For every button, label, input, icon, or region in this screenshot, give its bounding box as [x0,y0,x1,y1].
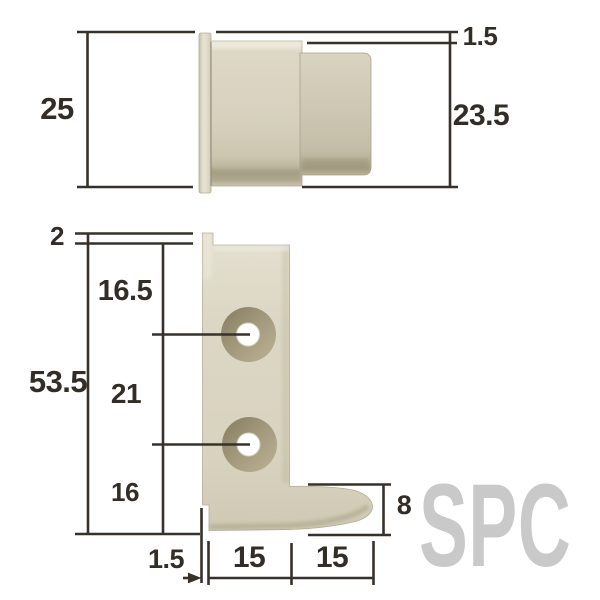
dim-label-lip-offset: 2 [50,223,64,249]
body-bottom-shadow [210,169,301,182]
diagram-canvas: 25 1.5 23.5 2 53.5 16.5 21 16 8 1.5 15 1… [0,0,600,600]
bottom-view-part [203,233,373,531]
dim-label-total-height-top: 25 [40,93,73,124]
dim-label-wall-thickness: 1.5 [148,546,184,573]
lip-highlight [204,234,212,279]
plate-right-shading [282,247,289,483]
part-protrusion-side [300,53,371,175]
part-body-side [209,41,302,186]
part-flange-side [199,33,211,193]
dim-label-hole-spacing: 21 [111,380,141,408]
dim-label-foot-height: 8 [397,492,412,519]
dim-label-width-inner: 15 [233,543,265,573]
top-view-part [199,33,371,193]
protrusion-bottom-shadow [302,159,369,170]
dim-label-body-height: 23.5 [453,101,509,131]
dim-label-hole2-to-bottom: 16 [111,479,139,505]
plate-top-highlight [214,246,288,251]
dim-label-width-outer: 15 [316,543,348,573]
dim-label-top-to-hole1: 16.5 [98,277,152,306]
dim-label-flange-offset-top: 1.5 [463,23,498,49]
dim-label-total-height-bottom: 53.5 [29,366,87,397]
body-top-highlight [210,42,301,48]
arrowhead-1-5 [188,573,202,584]
spc-watermark: SPC [419,467,571,585]
